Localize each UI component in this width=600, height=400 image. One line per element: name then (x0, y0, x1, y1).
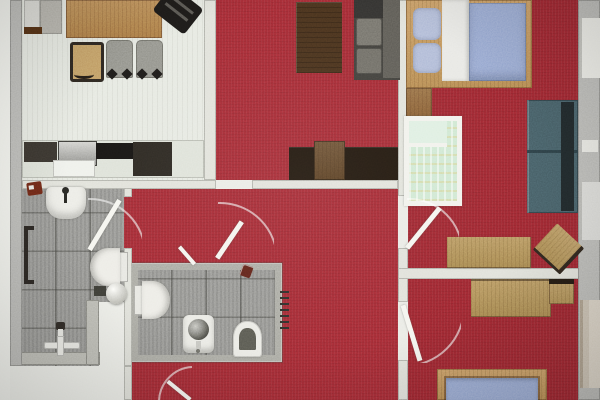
double-bed (406, 0, 532, 88)
shower-fitting (42, 322, 82, 356)
sofa-cushion (356, 18, 382, 46)
photo-left-margin (0, 0, 10, 400)
living-sideboard-center (314, 141, 345, 180)
teal-daybed (527, 100, 578, 213)
wall-hall-bedrooms-c (398, 360, 408, 400)
right-wall-window-small (582, 140, 598, 152)
living-sofa (354, 0, 400, 80)
wall-hallway-top-right (252, 180, 398, 189)
baby-crib (404, 116, 462, 206)
chair-back-edge (549, 279, 574, 284)
sofa-cushion (356, 48, 382, 74)
wc-sink (183, 315, 214, 353)
bedroom-second-chair (549, 279, 574, 304)
dining-cabinet (24, 0, 62, 34)
wc-sink-spout (196, 341, 201, 349)
bathroom-shelf-object (26, 181, 43, 196)
wc-bidet (233, 321, 262, 357)
right-wall-window-bottom (580, 300, 600, 388)
wall-entry-sliver (124, 366, 132, 400)
bathroom-small-unit (94, 286, 106, 296)
kitchen-dark-cabinet (24, 142, 57, 162)
towel-rail-bar (24, 226, 28, 284)
object-highlight (29, 185, 35, 190)
daybed-shadow-band (561, 102, 574, 211)
kitchen-cooktop (96, 143, 134, 159)
coffee-table (296, 2, 342, 73)
toilet-tank (119, 252, 128, 282)
outer-wall-right (578, 0, 600, 400)
kitchen-tall-unit (133, 142, 172, 176)
single-bed-mattress (446, 378, 538, 400)
entry-floor (0, 366, 131, 400)
dining-cabinet-accent (24, 27, 42, 34)
toilet-bowl (90, 248, 120, 286)
dining-chair-wood (70, 42, 104, 82)
wc-toilet-bowl (142, 281, 170, 319)
wc-toilet (134, 281, 170, 319)
shower-bar-vertical (57, 336, 64, 356)
wc-bidet-basin (239, 328, 256, 350)
chair-foot (151, 68, 162, 79)
floor-plan-photo (0, 0, 600, 400)
kitchen-counter (22, 140, 204, 178)
sofa-backrest (383, 0, 400, 78)
bed-pillow (413, 8, 441, 40)
basin-faucet-stem (64, 192, 67, 203)
radiator (280, 291, 289, 333)
dining-cabinet-right (40, 0, 62, 34)
wall-dining-living (204, 0, 216, 180)
chair-foot (106, 68, 117, 79)
bathroom-toilet (90, 248, 128, 286)
dining-chair-gray-1 (106, 40, 133, 78)
bed-sheet (442, 0, 469, 81)
bed-duvet (469, 3, 526, 81)
towel-rail-stub (24, 226, 34, 230)
wall-bedroom-divider (398, 268, 600, 279)
bedroom-main-desk (447, 237, 531, 268)
dining-chair-gray-2 (136, 40, 163, 78)
wc-sink-bowl (188, 319, 209, 340)
dining-chair-wood-back (74, 70, 94, 79)
right-wall-window-top (580, 18, 600, 78)
wc-room (131, 263, 282, 362)
right-wall-window-mid (580, 182, 600, 240)
single-bed (437, 369, 547, 400)
crib-divider (409, 143, 447, 147)
bed-pillow (413, 43, 441, 73)
bedroom-second-desk (471, 279, 551, 317)
bathroom-washbasin (46, 187, 86, 219)
chair-foot (121, 68, 132, 79)
bathroom-round-basin (106, 283, 127, 304)
wc-sink-drain (196, 349, 200, 353)
kitchen-counter-block (53, 160, 95, 177)
towel-rail (24, 226, 37, 284)
outer-wall-left (10, 0, 22, 366)
bathroom-niche-floor (99, 302, 124, 366)
shower-tray-edge-right (86, 300, 99, 365)
sofa-armrest (354, 0, 383, 18)
wall-bathroom-right-a (124, 188, 132, 197)
chair-foot (136, 68, 147, 79)
dining-table (66, 0, 162, 38)
crib-pillow-area (409, 121, 447, 143)
nightstand (406, 88, 432, 118)
towel-rail-stub (24, 280, 34, 284)
